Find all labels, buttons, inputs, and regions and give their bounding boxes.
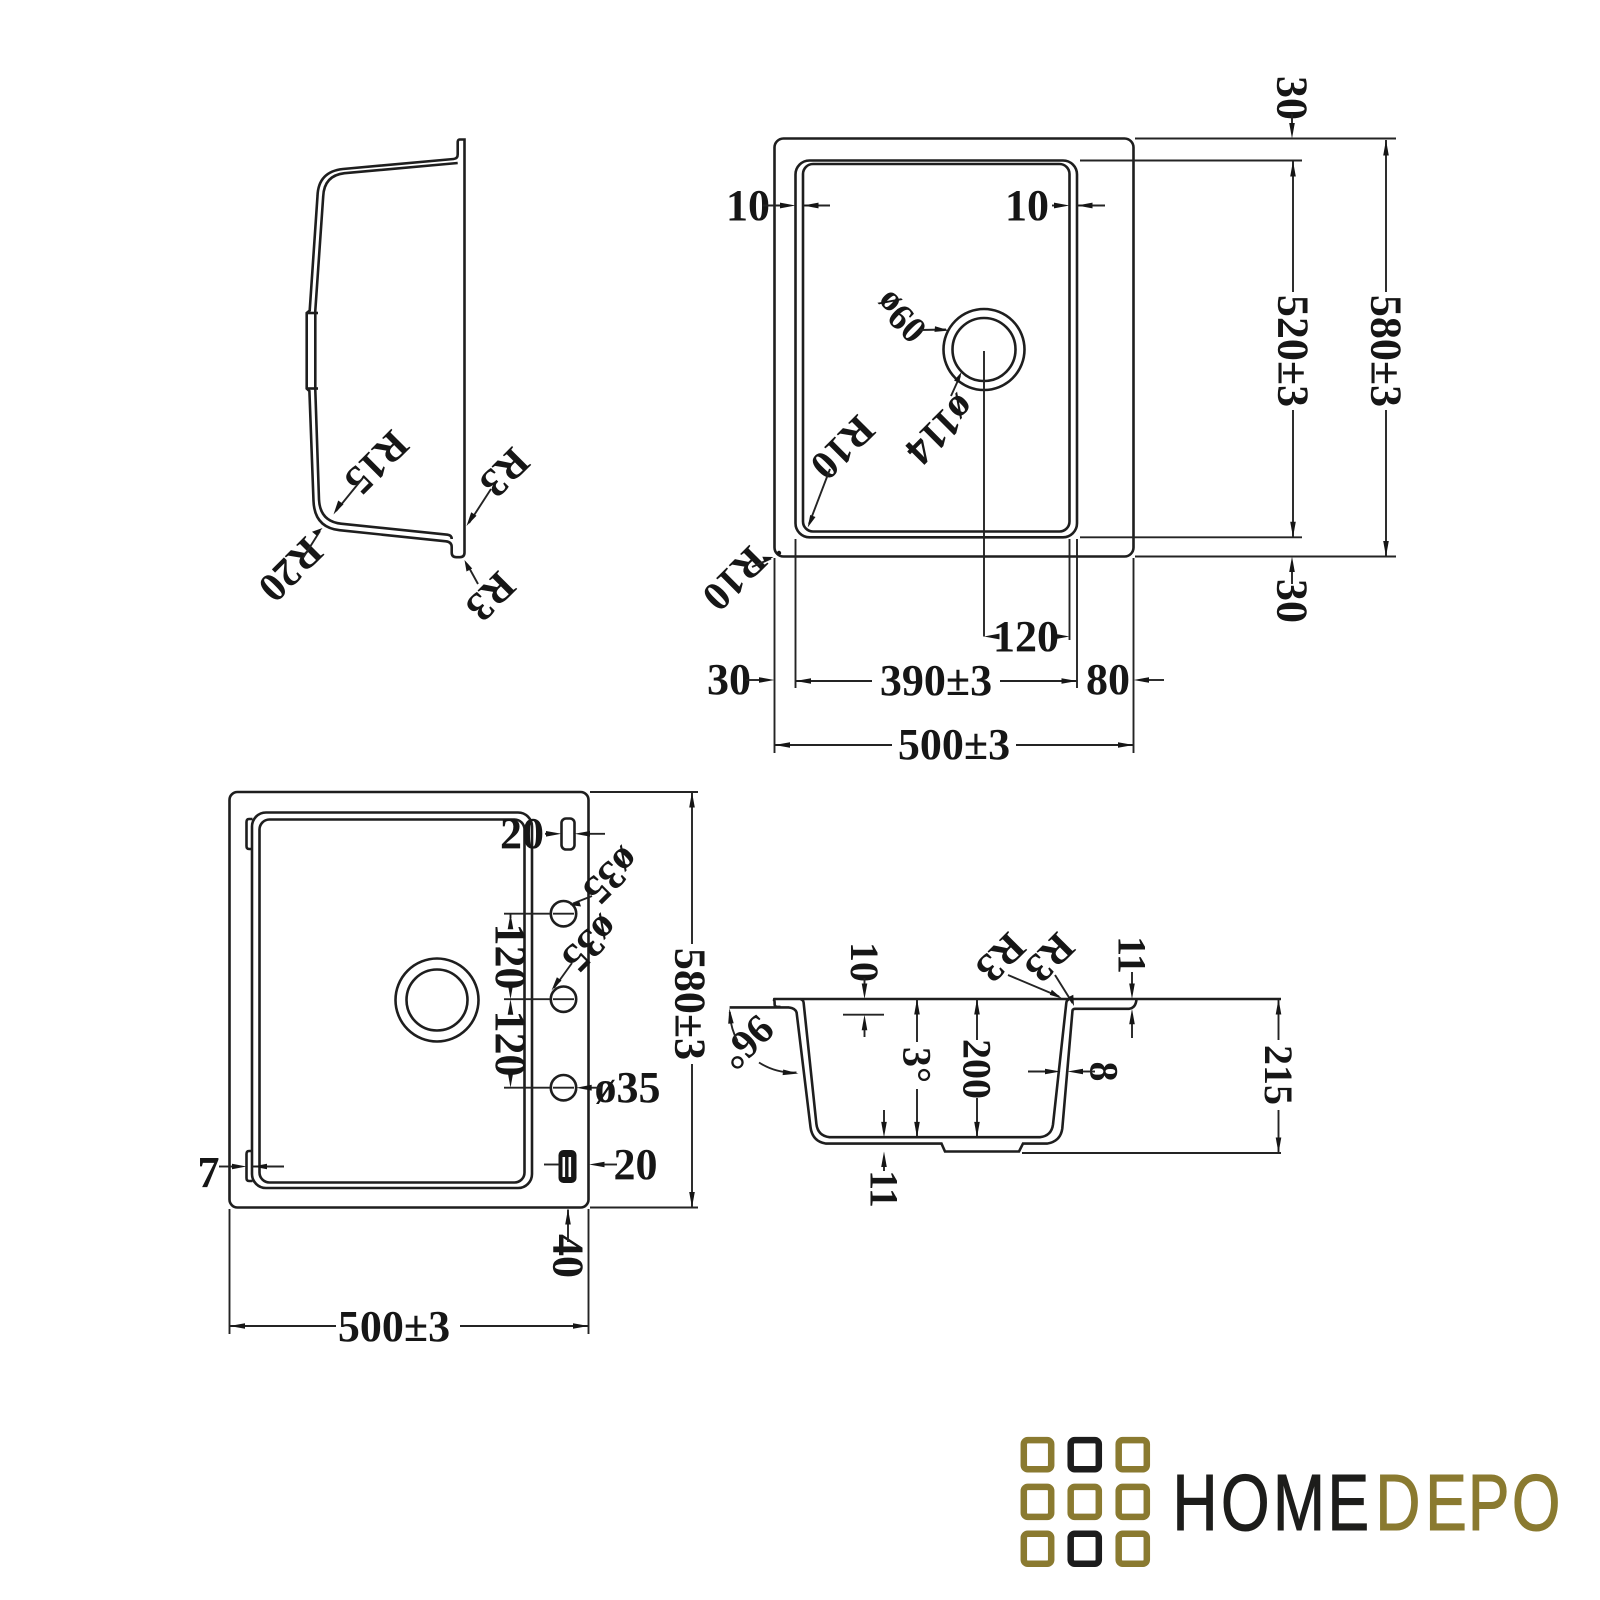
- svg-text:580±3: 580±3: [666, 948, 715, 1060]
- svg-text:30: 30: [1268, 76, 1317, 120]
- svg-text:O: O: [1512, 1459, 1561, 1548]
- svg-text:M: M: [1273, 1459, 1325, 1548]
- svg-text:30: 30: [1268, 579, 1317, 623]
- svg-text:7: 7: [198, 1148, 220, 1197]
- svg-text:390±3: 390±3: [880, 656, 992, 705]
- svg-text:520±3: 520±3: [1269, 295, 1318, 407]
- svg-text:120: 120: [486, 924, 535, 990]
- svg-text:120: 120: [486, 1011, 535, 1077]
- svg-text:P: P: [1468, 1459, 1510, 1548]
- svg-text:10: 10: [842, 942, 887, 982]
- svg-text:20: 20: [614, 1140, 658, 1189]
- svg-text:580±3: 580±3: [1362, 295, 1411, 407]
- svg-text:215: 215: [1256, 1045, 1301, 1105]
- svg-text:11: 11: [1110, 936, 1155, 974]
- svg-text:O: O: [1221, 1459, 1270, 1548]
- svg-text:80: 80: [1086, 655, 1130, 704]
- svg-text:10: 10: [1005, 181, 1049, 230]
- svg-text:120: 120: [993, 612, 1059, 661]
- svg-text:11: 11: [862, 1170, 907, 1208]
- svg-text:ø35: ø35: [595, 1063, 661, 1112]
- svg-text:200: 200: [955, 1039, 1000, 1099]
- svg-text:3°: 3°: [895, 1047, 940, 1083]
- svg-text:H: H: [1172, 1459, 1217, 1548]
- svg-text:30: 30: [707, 655, 751, 704]
- svg-text:E: E: [1425, 1459, 1467, 1548]
- svg-text:20: 20: [500, 809, 544, 858]
- svg-text:D: D: [1375, 1459, 1420, 1548]
- svg-text:500±3: 500±3: [898, 720, 1010, 769]
- svg-text:500±3: 500±3: [338, 1302, 450, 1351]
- svg-text:E: E: [1327, 1459, 1369, 1548]
